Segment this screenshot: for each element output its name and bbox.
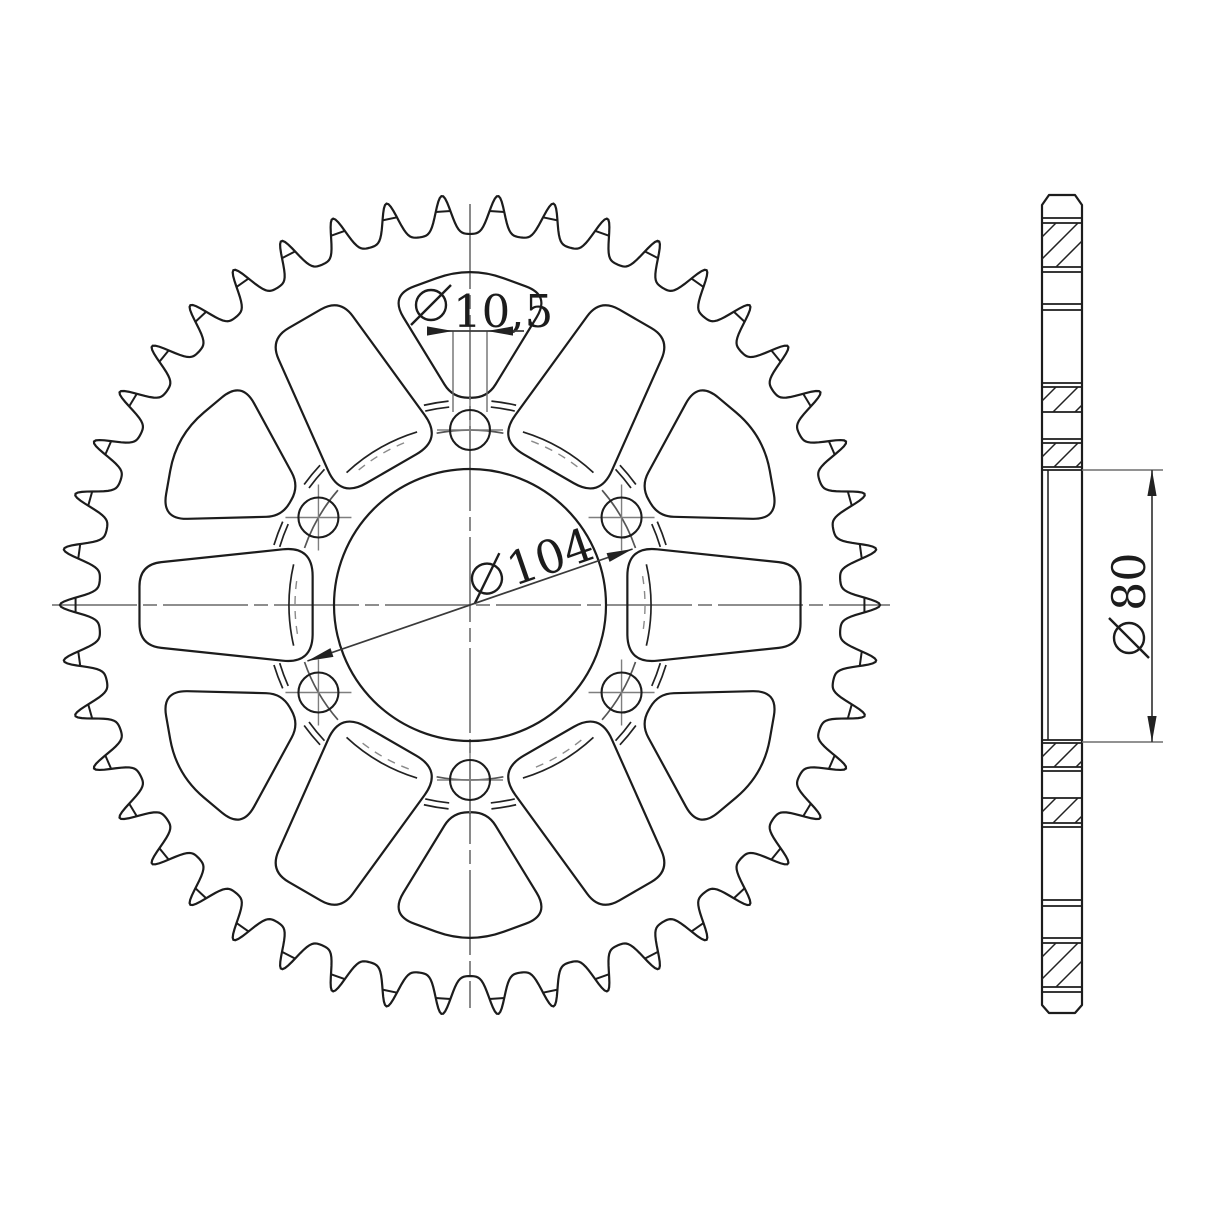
dimension-label-bolt-circle: 104 [500, 517, 601, 597]
diameter-symbol-icon [411, 285, 451, 325]
sprocket-front-view: 10,5 104 [52, 196, 890, 1014]
sprocket-drawing: 10,5 104 80 [0, 0, 1214, 1214]
sprocket-section-view: 80 [1042, 195, 1163, 1013]
dimension-label-bore: 80 [1102, 552, 1156, 611]
dimension-bore-diameter: 80 [1082, 470, 1163, 742]
diameter-symbol-icon [1109, 618, 1149, 658]
section-profile [1042, 195, 1082, 1013]
drawing-canvas: 10,5 104 80 [0, 0, 1214, 1214]
